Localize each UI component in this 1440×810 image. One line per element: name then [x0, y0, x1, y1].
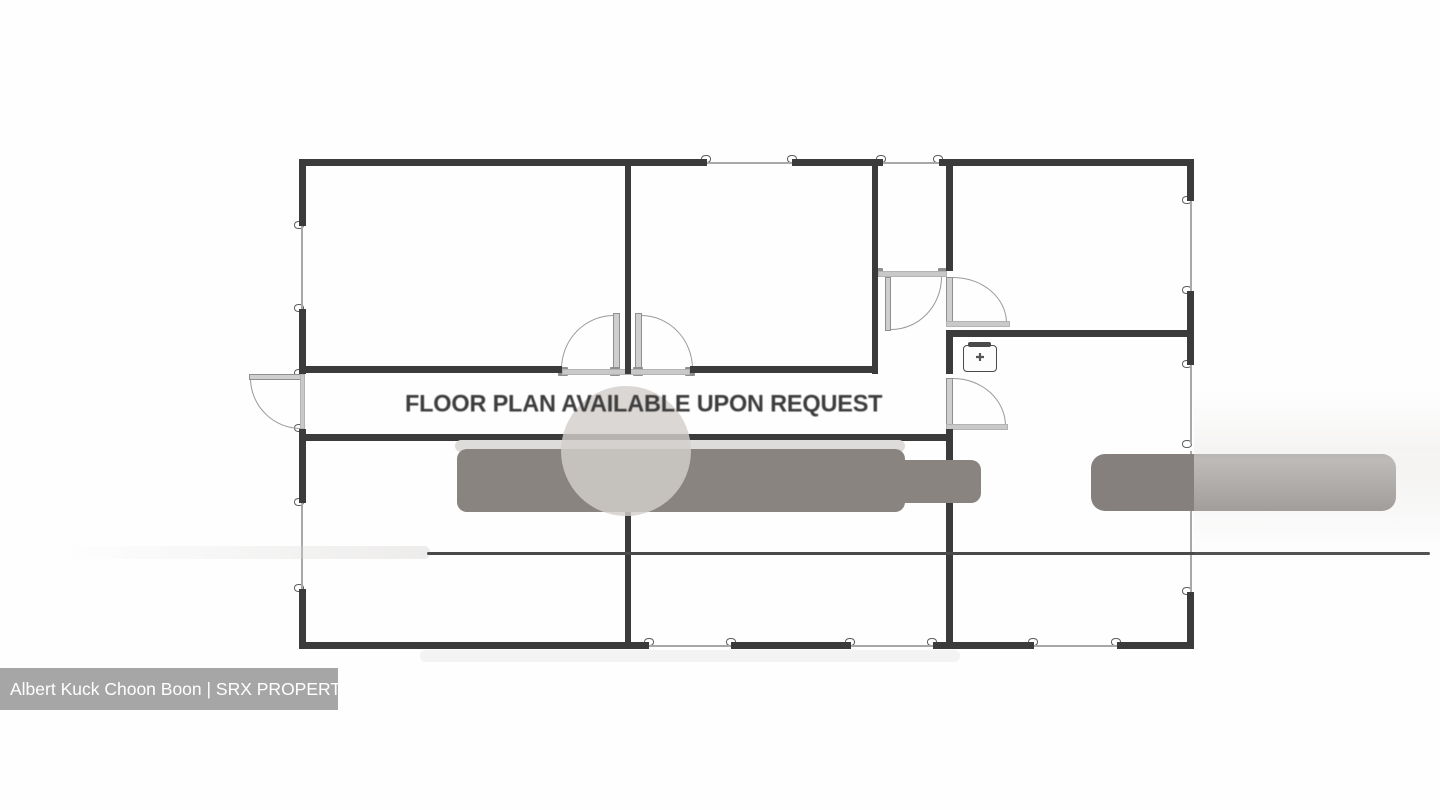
wall — [933, 642, 1034, 649]
window — [851, 645, 933, 647]
redaction-bar-left-tail — [893, 460, 981, 503]
blur-artifact-line-tail — [60, 546, 430, 559]
blur-artifact-haze — [1194, 392, 1440, 562]
door-sill — [300, 374, 305, 429]
air-conditioner-icon: ✚ — [963, 345, 997, 372]
window — [882, 162, 939, 164]
wall — [946, 159, 953, 271]
window — [706, 162, 792, 164]
blur-artifact-smudge — [420, 650, 960, 662]
door-swing-arc — [561, 315, 614, 369]
wall — [1187, 291, 1194, 365]
door-swing-arc — [641, 315, 693, 369]
door-swing-arc — [891, 277, 942, 330]
door-swing-arc — [953, 378, 1006, 426]
wall — [1117, 642, 1194, 649]
wall — [731, 642, 851, 649]
window — [1034, 645, 1117, 647]
wall — [946, 330, 1194, 337]
wall — [300, 642, 649, 649]
door-swing-arc — [250, 378, 301, 429]
door-leaf — [885, 277, 891, 331]
wall — [299, 429, 306, 503]
door-leaf — [946, 378, 953, 426]
door-leaf — [249, 374, 302, 380]
photo-credit-caption: Albert Kuck Choon Boon | SRX PROPERTY — [0, 668, 338, 710]
wall — [299, 589, 306, 649]
wall — [1187, 592, 1194, 649]
wall — [792, 159, 883, 166]
door-leaf — [613, 313, 620, 371]
wall — [625, 159, 631, 374]
wall — [300, 366, 562, 373]
door-sill — [878, 271, 947, 277]
wall — [300, 159, 707, 166]
window — [1190, 201, 1192, 291]
wall — [299, 309, 306, 374]
wall — [690, 366, 878, 373]
wall — [299, 159, 306, 226]
wall — [946, 334, 953, 374]
door-sill — [946, 424, 1008, 430]
wall — [872, 159, 878, 374]
wall — [939, 159, 1194, 166]
watermark-text: FLOOR PLAN AVAILABLE UPON REQUEST — [405, 389, 882, 417]
door-leaf — [635, 313, 642, 371]
door-sill — [946, 321, 1010, 327]
door-leaf — [946, 277, 953, 323]
floor-plan-image: ✚ FLOOR PLAN AVAILABLE UPON REQUEST Albe… — [0, 0, 1440, 810]
window — [301, 226, 303, 309]
door-swing-arc — [953, 277, 1007, 323]
window — [649, 645, 731, 647]
window — [1190, 365, 1192, 444]
